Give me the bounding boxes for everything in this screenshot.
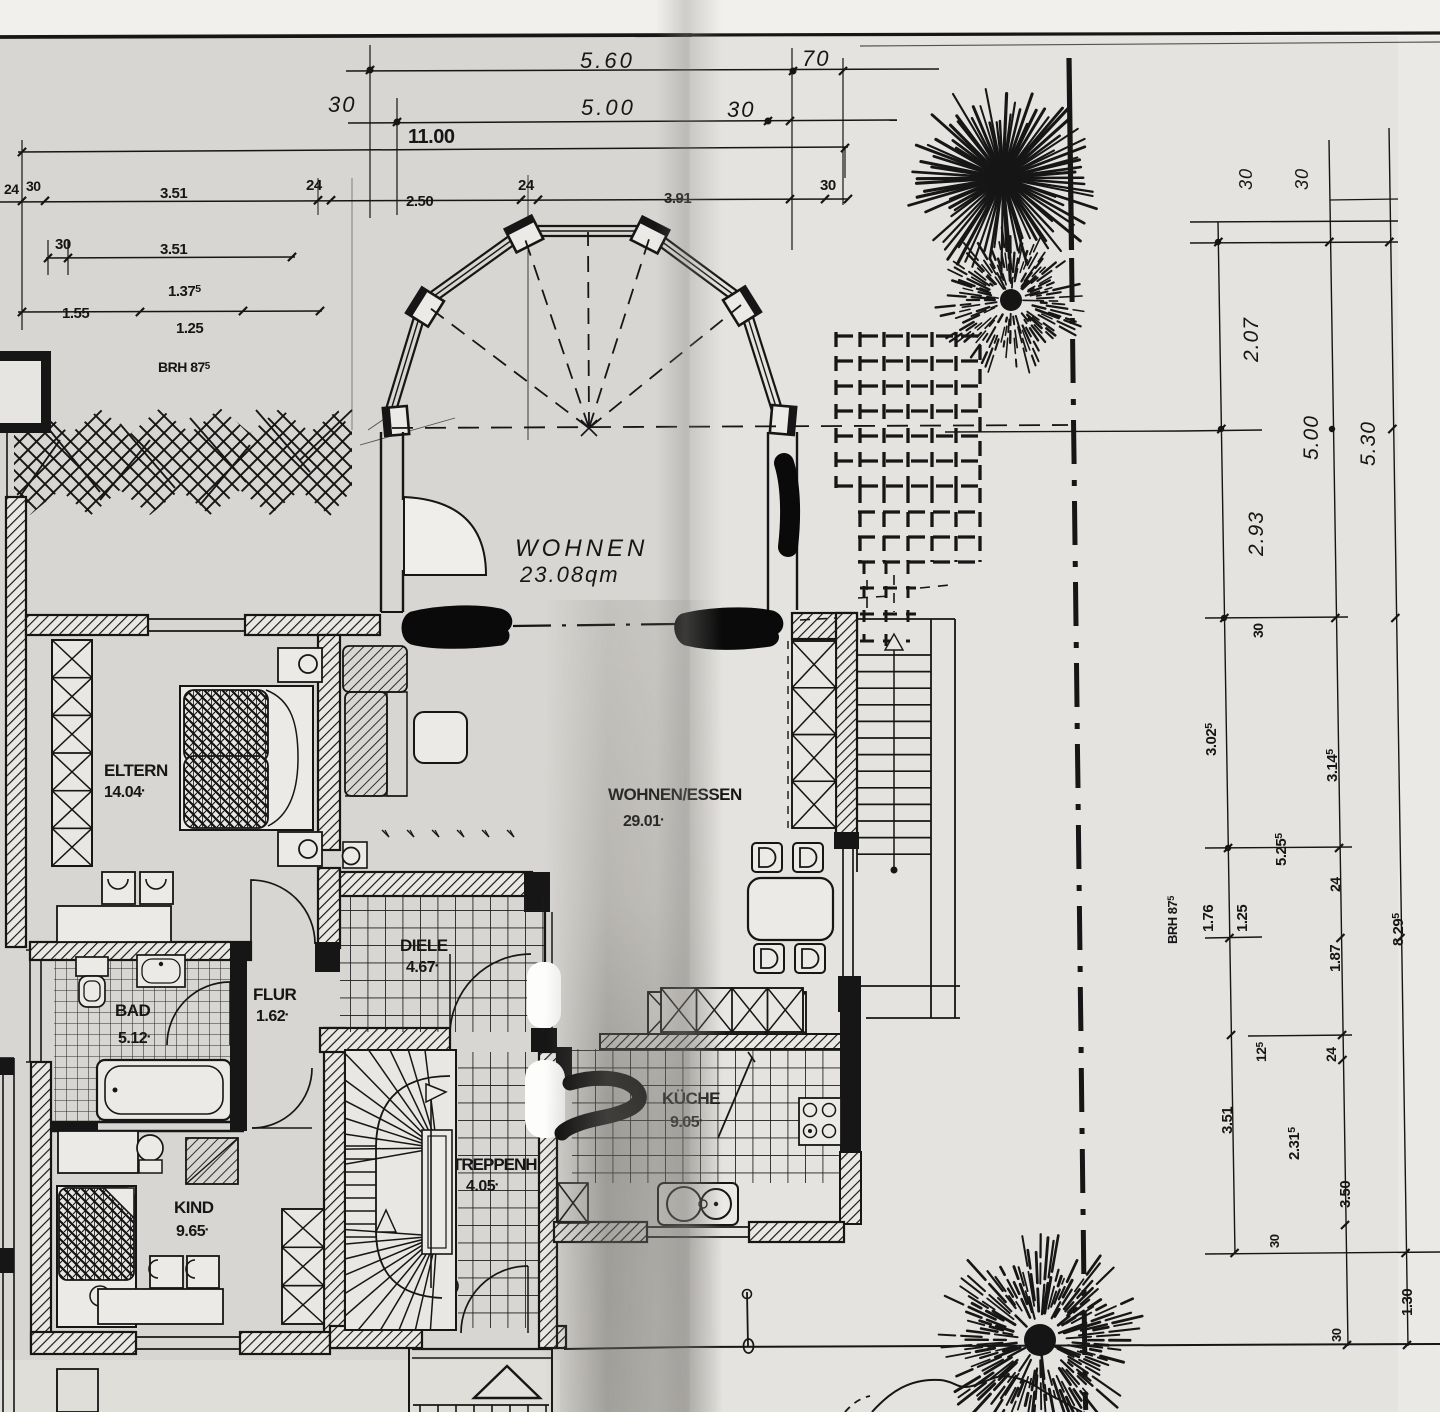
svg-text:4.05▪: 4.05▪ <box>466 1178 498 1195</box>
svg-text:30: 30 <box>1292 168 1312 190</box>
svg-text:3.51: 3.51 <box>1219 1107 1236 1134</box>
svg-text:BRH 875: BRH 875 <box>1165 896 1180 944</box>
svg-text:1.25: 1.25 <box>1234 905 1251 932</box>
svg-text:1.55: 1.55 <box>62 305 89 322</box>
svg-text:2.93: 2.93 <box>1245 511 1268 557</box>
svg-text:24: 24 <box>4 181 19 197</box>
svg-text:30: 30 <box>727 97 755 122</box>
svg-text:5.30: 5.30 <box>1357 421 1380 466</box>
svg-text:3.51: 3.51 <box>160 241 187 258</box>
svg-text:30: 30 <box>1329 1328 1344 1342</box>
svg-text:FLUR: FLUR <box>253 985 297 1004</box>
svg-text:30: 30 <box>26 178 41 194</box>
svg-text:70: 70 <box>802 46 830 71</box>
svg-text:24: 24 <box>1327 877 1343 892</box>
svg-text:24: 24 <box>1323 1047 1339 1062</box>
svg-text:1.25: 1.25 <box>176 320 203 337</box>
svg-text:DIELE: DIELE <box>400 936 448 955</box>
svg-text:3.50: 3.50 <box>1337 1181 1354 1208</box>
svg-text:30: 30 <box>820 177 836 194</box>
svg-text:BAD: BAD <box>115 1001 151 1020</box>
svg-text:1.87: 1.87 <box>1327 945 1344 972</box>
svg-text:BRH 875: BRH 875 <box>158 359 211 375</box>
svg-text:4.67▪: 4.67▪ <box>406 959 438 976</box>
svg-text:1.62▪: 1.62▪ <box>256 1008 288 1025</box>
svg-text:5.12▪: 5.12▪ <box>118 1030 150 1047</box>
svg-text:KIND: KIND <box>174 1198 214 1217</box>
svg-text:30: 30 <box>328 92 356 117</box>
svg-text:5.60: 5.60 <box>580 48 635 73</box>
svg-text:ELTERN: ELTERN <box>104 761 168 780</box>
svg-text:30: 30 <box>1250 623 1266 638</box>
svg-text:30: 30 <box>1236 168 1256 190</box>
svg-text:5.00: 5.00 <box>581 95 636 120</box>
svg-text:24: 24 <box>518 177 535 194</box>
svg-text:30: 30 <box>1267 1234 1282 1248</box>
svg-text:TREPPENH: TREPPENH <box>452 1155 537 1174</box>
svg-text:1.30: 1.30 <box>1399 1289 1416 1316</box>
svg-text:24: 24 <box>306 177 323 194</box>
svg-text:23.08qm: 23.08qm <box>519 562 620 587</box>
svg-text:14.04▪: 14.04▪ <box>104 784 145 801</box>
svg-text:5.00: 5.00 <box>1300 415 1323 460</box>
svg-text:11.00: 11.00 <box>408 126 455 148</box>
svg-text:9.65▪: 9.65▪ <box>176 1223 208 1240</box>
svg-text:WOHNEN: WOHNEN <box>515 535 648 562</box>
svg-text:2.07: 2.07 <box>1240 317 1263 363</box>
svg-text:3.51: 3.51 <box>160 185 187 202</box>
svg-text:2.50: 2.50 <box>406 193 433 210</box>
svg-text:1.76: 1.76 <box>1200 905 1217 932</box>
